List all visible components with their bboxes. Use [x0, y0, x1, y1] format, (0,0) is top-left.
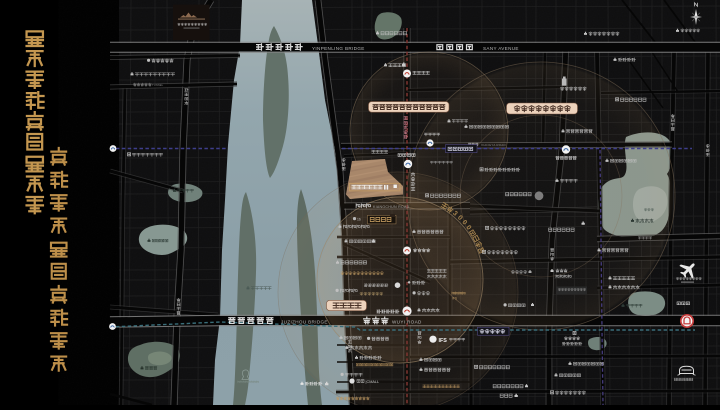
svg-text:KIANGCHUN ROAD: KIANGCHUN ROAD: [373, 205, 410, 209]
svg-text:JUZIZHOU BRIDGE: JUZIZHOU BRIDGE: [281, 320, 328, 325]
svg-text:IFS: IFS: [452, 297, 457, 301]
svg-text:IFS: IFS: [439, 338, 448, 344]
svg-text:WUYI ROAD: WUYI ROAD: [392, 320, 422, 325]
svg-text:YINPENLING BRIDGE: YINPENLING BRIDGE: [312, 46, 365, 51]
svg-text:SANY AVENUE: SANY AVENUE: [483, 46, 519, 51]
svg-text:XIANGYA ROAD: XIANGYA ROAD: [481, 143, 506, 147]
svg-text:|CMALL: |CMALL: [366, 380, 380, 384]
svg-text:TUNNEL: TUNNEL: [152, 83, 164, 87]
svg-text:16: 16: [357, 217, 361, 221]
